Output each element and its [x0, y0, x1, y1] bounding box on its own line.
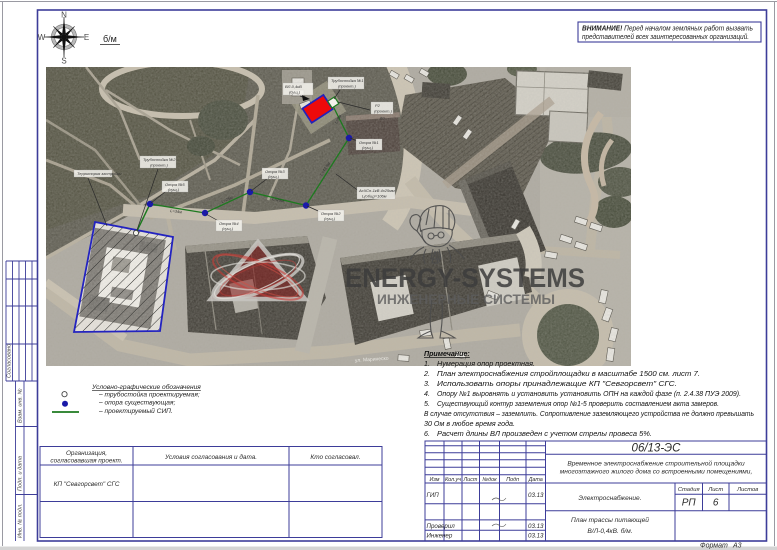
- svg-text:Электроснабжение.: Электроснабжение.: [578, 494, 641, 502]
- svg-text:Изм: Изм: [430, 477, 440, 483]
- svg-text:– опора существующая;: – опора существующая;: [98, 400, 175, 407]
- svg-text:S: S: [61, 57, 66, 66]
- svg-text:E: E: [84, 33, 89, 42]
- svg-text:Кол.уч: Кол.уч: [445, 477, 461, 483]
- svg-text:Инженер: Инженер: [427, 533, 453, 540]
- svg-text:Инв. № подл.: Инв. № подл.: [18, 503, 24, 538]
- svg-text:А3: А3: [732, 543, 742, 550]
- svg-text:Трубостойка №1: Трубостойка №1: [331, 78, 363, 83]
- svg-text:Согласовано: Согласовано: [7, 344, 13, 378]
- svg-text:1.Нумерация опор проектная.: 1.Нумерация опор проектная.: [424, 360, 535, 368]
- svg-text:(сущ.): (сущ.): [222, 226, 234, 231]
- svg-text:РП: РП: [682, 498, 697, 509]
- svg-text:(сущ.): (сущ.): [362, 145, 374, 150]
- svg-text:(проект.): (проект.): [338, 84, 357, 89]
- svg-text:Р2: Р2: [375, 103, 381, 108]
- svg-text:6: 6: [713, 498, 719, 509]
- svg-text:Формат: Формат: [700, 543, 728, 550]
- svg-text:N: N: [61, 11, 67, 20]
- svg-text:L(общ)=106м: L(общ)=106м: [362, 194, 387, 199]
- svg-text:03.13: 03.13: [528, 523, 544, 530]
- svg-text:Условно-графические обозначени: Условно-графические обозначения: [91, 383, 201, 391]
- svg-text:(проект.): (проект.): [150, 163, 169, 168]
- svg-text:(сущ.): (сущ.): [324, 216, 336, 221]
- svg-text:3.Использовать опоры принадлеж: 3.Использовать опоры принадлежащие КП "С…: [424, 380, 677, 388]
- svg-text:4.Опору №1 выровнять и установ: 4.Опору №1 выровнять и установить устано…: [424, 390, 741, 398]
- svg-text:КП "Севгорсвет" СГС: КП "Севгорсвет" СГС: [54, 481, 120, 488]
- svg-text:Взам. инв. №: Взам. инв. №: [18, 388, 24, 423]
- svg-text:(проект.): (проект.): [374, 109, 393, 114]
- svg-text:6.Расчет длины ВЛ произведен с: 6.Расчет длины ВЛ произведен с учетом ст…: [424, 430, 652, 438]
- svg-text:60: 60: [380, 116, 385, 121]
- svg-text:2.План электроснабжения стройп: 2.План электроснабжения стройплощадки в …: [423, 370, 700, 378]
- svg-text:Временное электроснабжение стр: Временное электроснабжение строительной …: [567, 460, 745, 468]
- svg-text:В случае отсутствия – заземлит: В случае отсутствия – заземлить. Сопроти…: [424, 410, 754, 418]
- svg-text:Организация,: Организация,: [66, 450, 107, 457]
- svg-text:Территория застройки: Территория застройки: [77, 171, 122, 176]
- svg-text:30 Ом в любое время года.: 30 Ом в любое время года.: [424, 420, 515, 428]
- svg-text:согласовавшая проект.: согласовавшая проект.: [50, 458, 122, 465]
- svg-text:03.13: 03.13: [528, 492, 544, 499]
- svg-text:Условия согласования и дата.: Условия согласования и дата.: [164, 453, 257, 461]
- svg-text:Трубостойка №2: Трубостойка №2: [143, 157, 176, 162]
- svg-text:Подп: Подп: [506, 477, 519, 483]
- svg-text:Проверил: Проверил: [427, 523, 456, 530]
- svg-text:План трассы питающей: План трассы питающей: [571, 516, 649, 524]
- svg-text:ГИП: ГИП: [427, 492, 440, 499]
- svg-text:б/м: б/м: [103, 34, 117, 44]
- svg-text:– трубостойка проектируемая;: – трубостойка проектируемая;: [98, 390, 200, 398]
- svg-text:№док: №док: [482, 477, 497, 483]
- svg-text:Кто согласовал.: Кто согласовал.: [310, 454, 360, 461]
- svg-text:представителей всех заинтересо: представителей всех заинтересованных орг…: [582, 32, 749, 41]
- svg-text:03.13: 03.13: [528, 533, 544, 540]
- svg-text:5.Существующий контур заземлен: 5.Существующий контур заземления опор №1…: [424, 400, 719, 408]
- svg-text:(сущ.): (сущ.): [168, 187, 180, 192]
- svg-text:многоэтажного жилого дома со в: многоэтажного жилого дома со встроенными…: [560, 468, 753, 476]
- svg-text:Дата: Дата: [528, 477, 543, 483]
- svg-text:АсХСн-1кВ 4х25мм: АсХСн-1кВ 4х25мм: [358, 188, 395, 193]
- svg-text:Подп. и дата: Подп. и дата: [18, 456, 24, 491]
- svg-text:06/13-ЭС: 06/13-ЭС: [632, 443, 682, 455]
- svg-text:– проектируемый СИП.: – проектируемый СИП.: [98, 407, 173, 415]
- svg-text:Стадия: Стадия: [678, 487, 700, 493]
- svg-text:Лист: Лист: [463, 477, 478, 483]
- svg-text:W: W: [38, 33, 46, 42]
- svg-text:Листов: Листов: [736, 487, 758, 493]
- svg-text:ENERGY-SYSTEMS: ENERGY-SYSTEMS: [345, 263, 585, 293]
- svg-text:ИНЖЕНЕРНЫЕ СИСТЕМЫ: ИНЖЕНЕРНЫЕ СИСТЕМЫ: [377, 292, 555, 307]
- svg-text:Лист: Лист: [707, 487, 723, 493]
- svg-text:Примечание:: Примечание:: [424, 350, 470, 358]
- svg-text:В/Л-0,4кВ. б/м.: В/Л-0,4кВ. б/м.: [587, 527, 632, 535]
- svg-text:ВЛ-0,4кВ: ВЛ-0,4кВ: [285, 84, 302, 89]
- svg-text:(сущ.): (сущ.): [289, 90, 301, 95]
- svg-text:(сущ.): (сущ.): [268, 174, 280, 179]
